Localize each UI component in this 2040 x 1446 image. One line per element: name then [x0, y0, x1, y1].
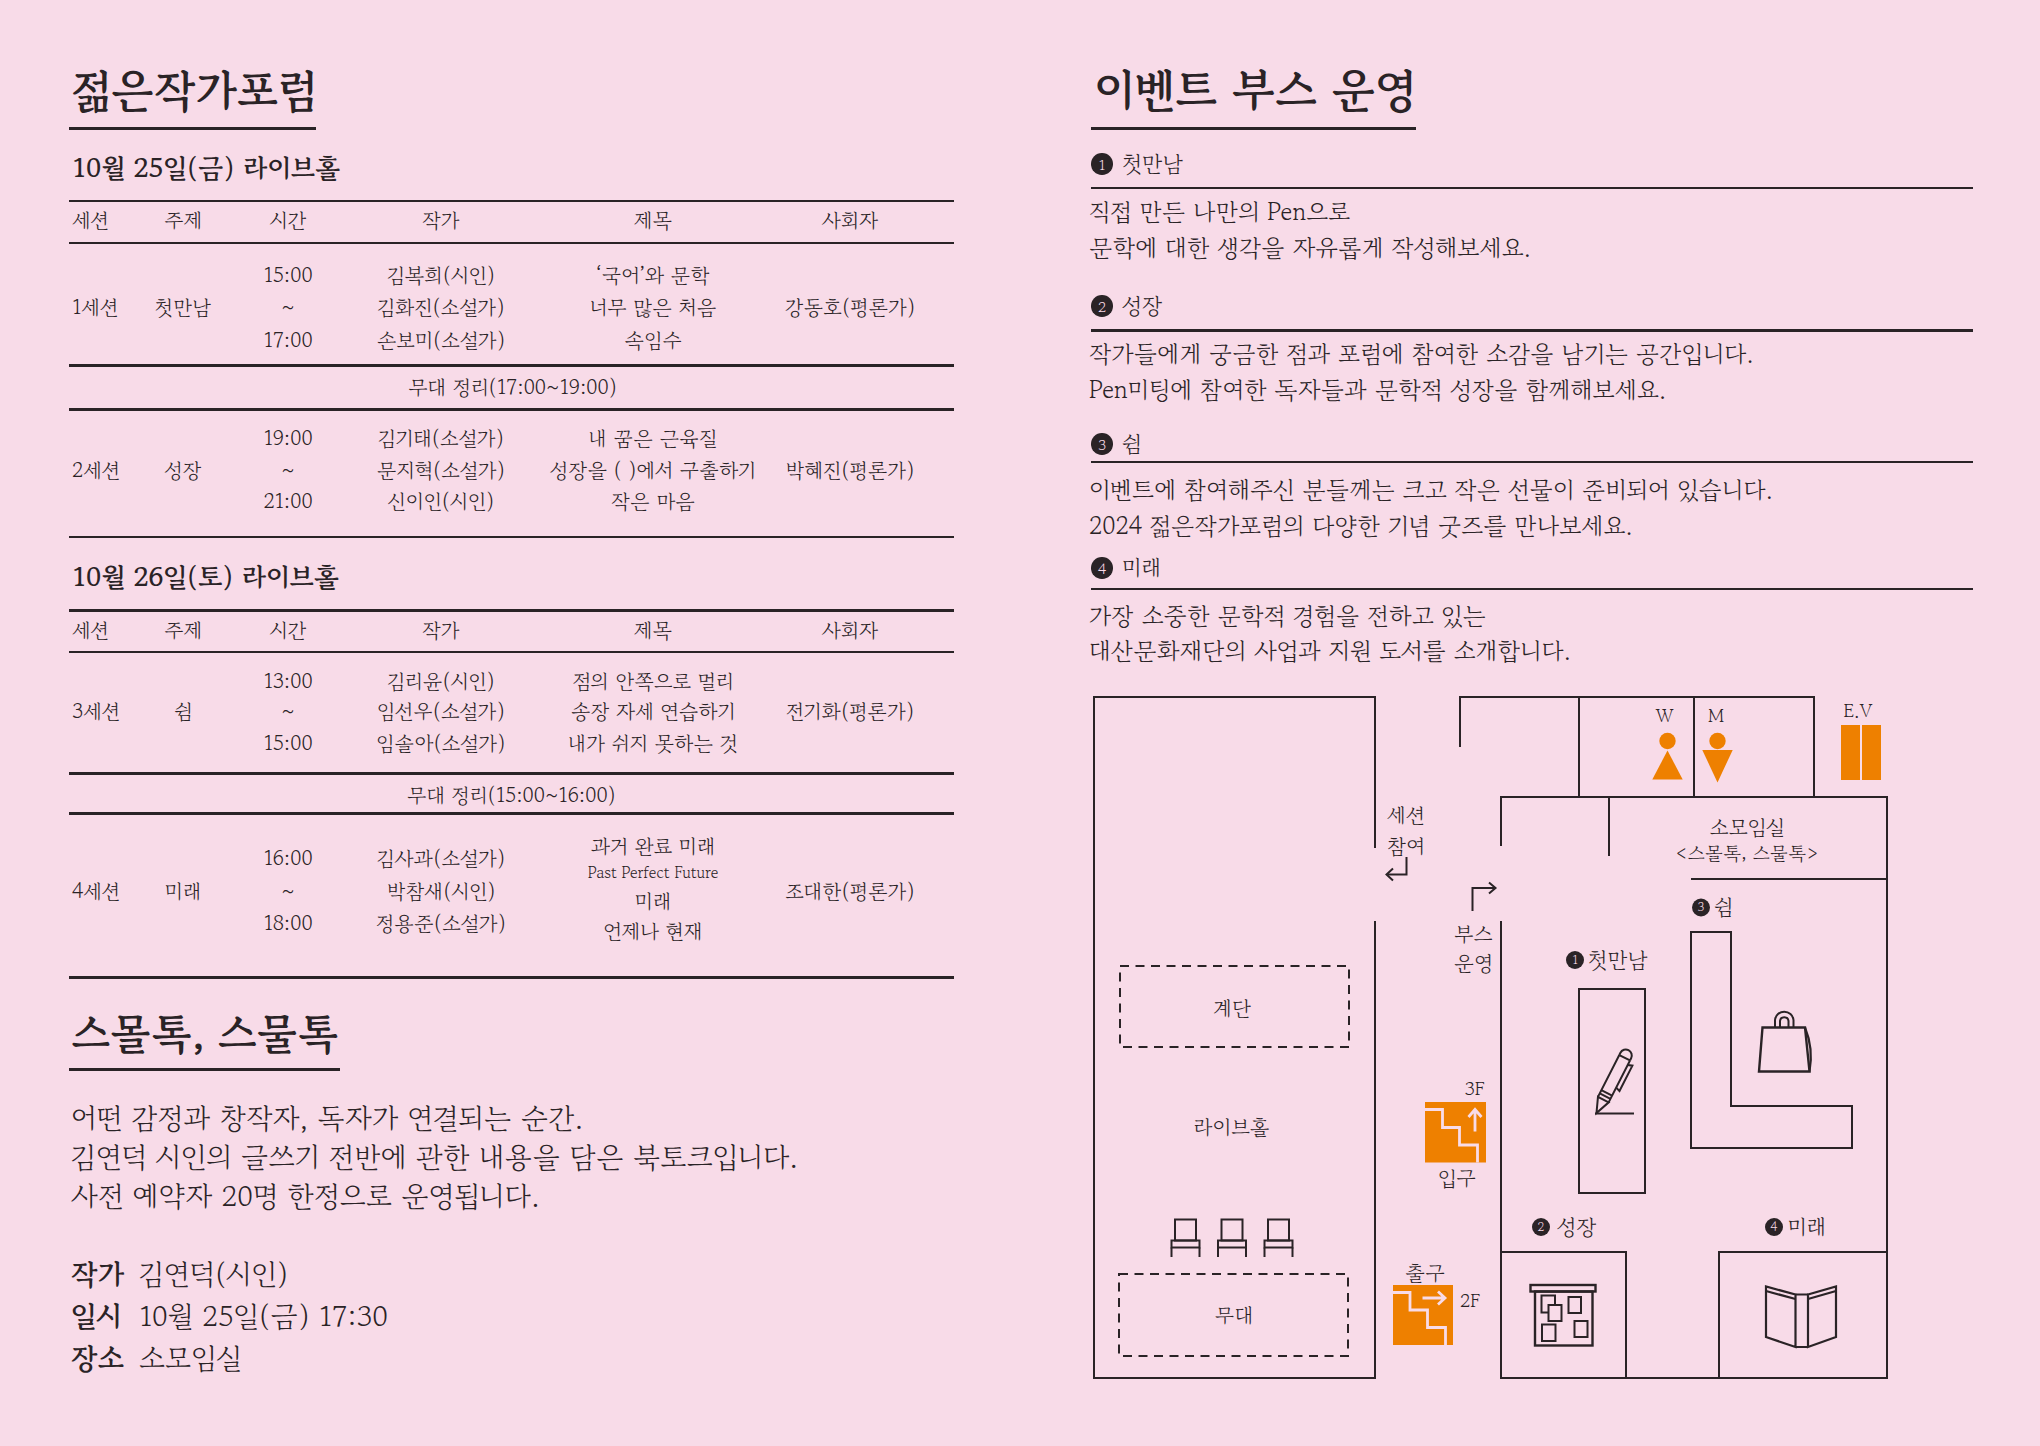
svg-text:4: 4	[1771, 1217, 1778, 1236]
svg-text:참여: 참여	[1387, 831, 1425, 861]
svg-text:소모임실: 소모임실	[1710, 812, 1784, 842]
svg-text:라이브홀: 라이브홀	[1193, 1112, 1269, 1142]
svg-text:2F: 2F	[1460, 1287, 1480, 1314]
svg-text:<스몰톡, 스물톡>: <스몰톡, 스물톡>	[1675, 839, 1818, 866]
svg-text:W: W	[1655, 702, 1673, 729]
svg-text:출구: 출구	[1405, 1258, 1445, 1288]
svg-text:계단: 계단	[1213, 993, 1251, 1023]
svg-text:입구: 입구	[1438, 1163, 1476, 1193]
svg-text:부스: 부스	[1454, 919, 1493, 949]
svg-text:운영: 운영	[1454, 948, 1493, 978]
svg-text:3: 3	[1698, 897, 1705, 916]
svg-text:M: M	[1708, 702, 1724, 729]
svg-text:첫만남: 첫만남	[1588, 943, 1648, 975]
svg-text:1: 1	[1572, 950, 1578, 969]
svg-text:쉼: 쉼	[1714, 890, 1733, 922]
svg-text:3F: 3F	[1464, 1075, 1484, 1102]
svg-text:세션: 세션	[1387, 800, 1424, 830]
svg-text:미래: 미래	[1788, 1210, 1826, 1242]
svg-text:성장: 성장	[1557, 1210, 1597, 1242]
svg-text:2: 2	[1538, 1217, 1545, 1236]
svg-text:무대: 무대	[1215, 1300, 1253, 1330]
svg-text:E.V: E.V	[1844, 697, 1873, 724]
